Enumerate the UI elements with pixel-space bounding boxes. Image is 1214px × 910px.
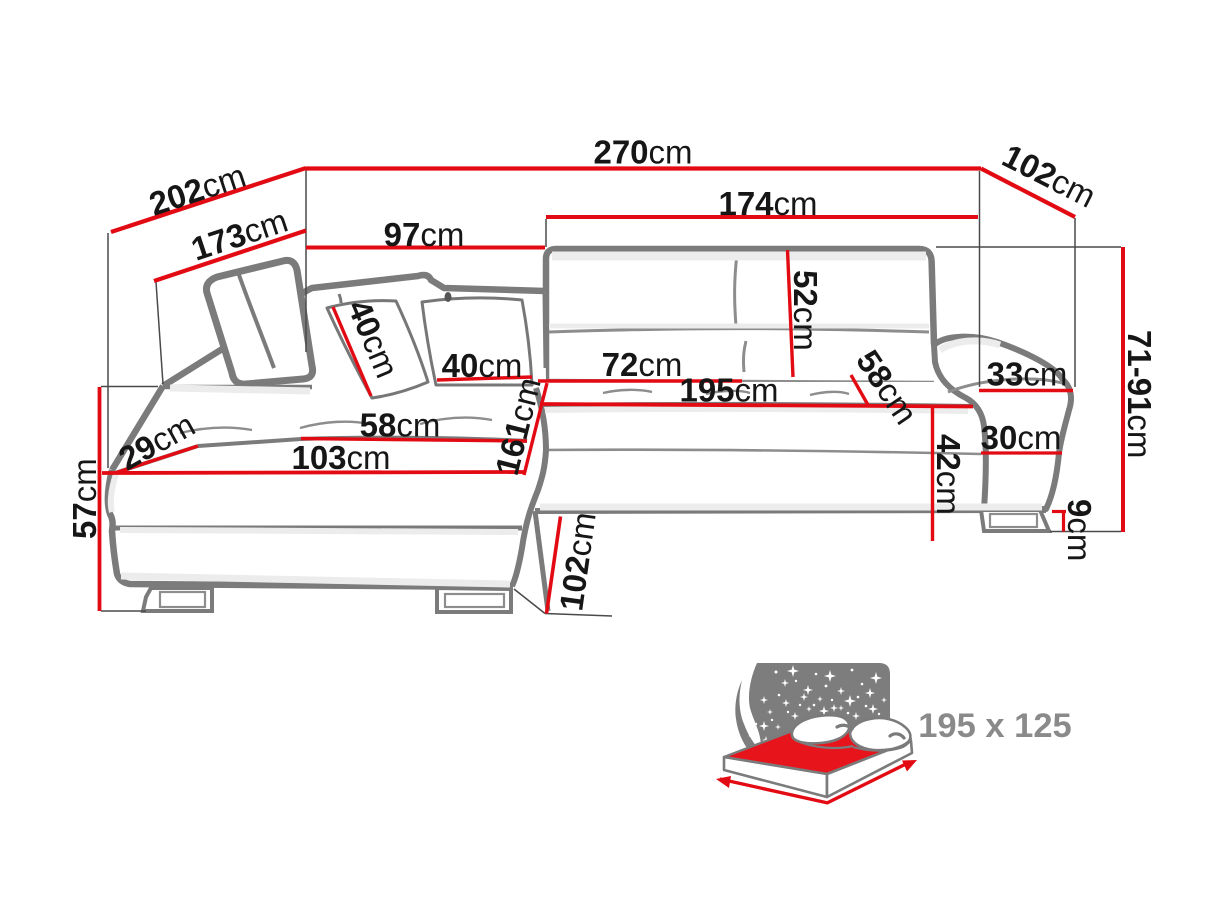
svg-text:42cm: 42cm xyxy=(930,434,967,515)
svg-text:9cm: 9cm xyxy=(1061,499,1098,561)
svg-text:33cm: 33cm xyxy=(987,356,1068,393)
svg-text:97cm: 97cm xyxy=(384,216,465,253)
svg-text:195 x 125: 195 x 125 xyxy=(918,707,1071,745)
svg-text:270cm: 270cm xyxy=(593,134,692,171)
svg-text:57cm: 57cm xyxy=(66,458,103,539)
svg-text:72cm: 72cm xyxy=(602,346,683,383)
svg-text:40cm: 40cm xyxy=(442,347,523,384)
svg-text:103cm: 103cm xyxy=(291,439,390,476)
svg-text:174cm: 174cm xyxy=(718,185,817,222)
svg-text:30cm: 30cm xyxy=(981,419,1062,456)
svg-text:71-91cm: 71-91cm xyxy=(1121,330,1158,458)
svg-text:58cm: 58cm xyxy=(360,407,441,444)
svg-text:52cm: 52cm xyxy=(787,270,824,351)
svg-text:195cm: 195cm xyxy=(679,372,778,409)
